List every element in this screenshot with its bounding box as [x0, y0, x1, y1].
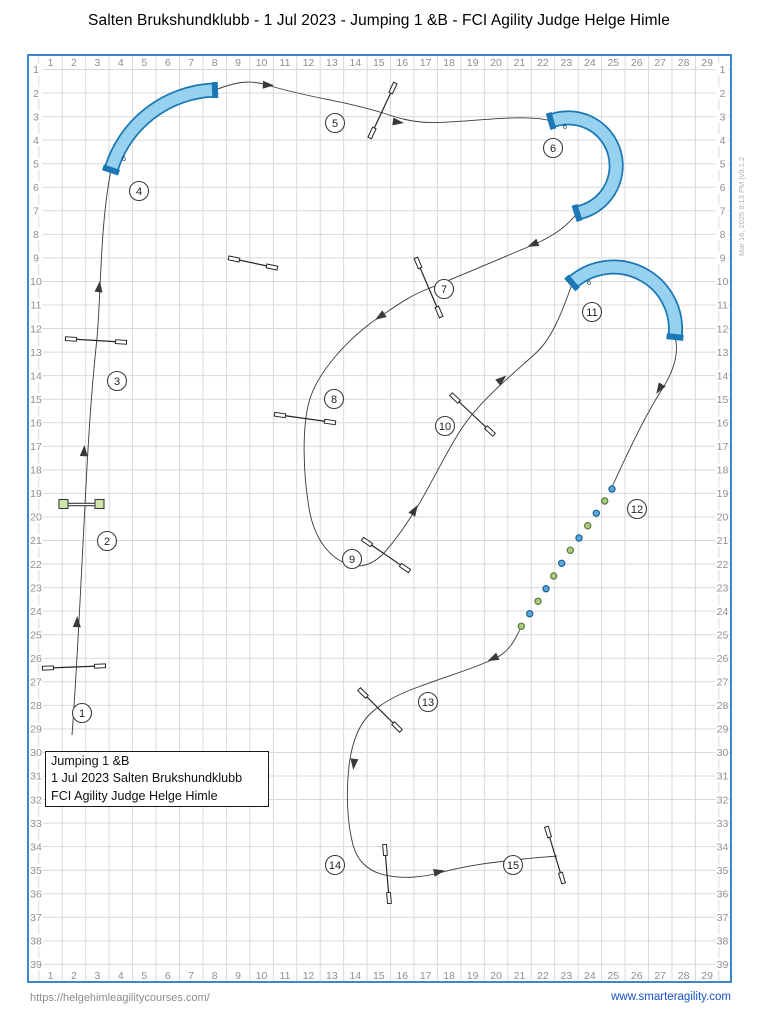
- grid-row-label-right: 3: [720, 111, 726, 123]
- obstacle-number-text: 4: [136, 186, 142, 198]
- grid-row-label-right: 5: [720, 158, 726, 170]
- grid-row-label-left: 3: [33, 111, 39, 123]
- grid-row-label-left: 15: [30, 394, 42, 406]
- jump-obstacle: [383, 844, 392, 903]
- grid-col-label-top: 4: [118, 57, 124, 69]
- grid-row-label-right: 12: [717, 323, 729, 335]
- grid-col-label-bottom: 18: [443, 970, 455, 982]
- grid-row-label-left: 19: [30, 488, 42, 500]
- jump-bar: [385, 850, 389, 898]
- grid-row-label-right: 23: [717, 582, 729, 594]
- grid-col-label-bottom: 12: [303, 970, 315, 982]
- jump-wing: [324, 419, 335, 424]
- grid-row-label-left: 27: [30, 677, 42, 689]
- grid-row-label-right: 16: [717, 417, 729, 429]
- direction-arrow: [526, 239, 539, 251]
- grid-row-label-left: 28: [30, 700, 42, 712]
- grid-row-label-right: 27: [717, 677, 729, 689]
- grid-row-label-left: 13: [30, 347, 42, 359]
- grid-col-label-top: 28: [678, 57, 690, 69]
- obstacle-number: 3: [108, 372, 127, 391]
- grid-row-label-right: 2: [720, 88, 726, 100]
- grid-col-label-top: 11: [280, 57, 291, 69]
- grid-row-label-left: 11: [31, 300, 42, 312]
- obstacle-number: 15: [504, 856, 523, 875]
- grid-row-label-left: 35: [30, 865, 42, 877]
- grid-row-label-left: 38: [30, 936, 42, 948]
- grid-row-label-left: 2: [33, 88, 39, 100]
- grid-col-label-bottom: 4: [118, 970, 124, 982]
- grid-row-label-left: 31: [30, 771, 42, 783]
- grid-col-label-top: 13: [326, 57, 338, 69]
- jump-wing: [274, 412, 285, 417]
- direction-arrow: [408, 503, 421, 517]
- obstacle-number: 12: [628, 500, 647, 519]
- jump-wing: [559, 872, 566, 884]
- direction-arrow: [73, 616, 81, 627]
- tunnel-end-cap: [215, 82, 216, 98]
- grid-row-label-left: 8: [33, 229, 39, 241]
- grid-col-label-bottom: 1: [48, 970, 54, 982]
- obstacle-number-text: 7: [441, 284, 447, 296]
- grid-row-label-left: 4: [33, 135, 39, 147]
- grid-row-label-left: 10: [30, 276, 42, 288]
- tunnel-end-cap: [667, 336, 684, 338]
- direction-arrow: [349, 758, 358, 770]
- grid-row-label-left: 18: [30, 465, 42, 477]
- tunnel-length-label: 6: [587, 278, 591, 287]
- course-path: [304, 213, 577, 566]
- grid-col-label-top: 15: [373, 57, 385, 69]
- grid-col-label-top: 29: [701, 57, 713, 69]
- grid-col-label-bottom: 5: [141, 970, 147, 982]
- grid-row-label-right: 34: [717, 841, 729, 853]
- obstacle-number-text: 12: [631, 504, 643, 516]
- grid-row-label-right: 38: [717, 936, 729, 948]
- grid-col-label-top: 12: [303, 57, 315, 69]
- grid-col-label-top: 2: [71, 57, 77, 69]
- obstacle-number: 9: [343, 550, 362, 569]
- jump-obstacle: [361, 537, 410, 572]
- obstacle-number-text: 2: [104, 536, 110, 548]
- grid-col-label-top: 8: [212, 57, 218, 69]
- grid-col-label-bottom: 16: [396, 970, 408, 982]
- grid-col-label-bottom: 19: [467, 970, 479, 982]
- obstacle-number-text: 8: [331, 394, 337, 406]
- tunnel-obstacle: [103, 82, 215, 173]
- weave-pole: [602, 498, 608, 504]
- obstacle-number-text: 1: [79, 708, 85, 720]
- grid-row-label-left: 17: [30, 441, 42, 453]
- grid-row-label-left: 22: [30, 559, 42, 571]
- grid-col-label-bottom: 20: [490, 970, 502, 982]
- grid-row-label-left: 32: [30, 794, 42, 806]
- weave-pole: [551, 573, 557, 579]
- grid-row-label-right: 39: [717, 959, 729, 971]
- jump-wing: [383, 844, 388, 855]
- grid-col-label-top: 14: [350, 57, 362, 69]
- grid-row-label-left: 39: [30, 959, 42, 971]
- grid-row-label-right: 4: [720, 135, 726, 147]
- grid-col-label-top: 18: [443, 57, 455, 69]
- weave-pole: [535, 598, 541, 604]
- grid-col-label-bottom: 21: [514, 970, 526, 982]
- grid-row-label-left: 7: [33, 206, 39, 218]
- grid-row-label-right: 32: [717, 794, 729, 806]
- grid-col-label-top: 26: [631, 57, 643, 69]
- tunnel-length-label: 6: [122, 154, 126, 163]
- grid-row-label-right: 15: [717, 394, 729, 406]
- obstacle-number-text: 9: [349, 554, 355, 566]
- grid-row-label-right: 24: [717, 606, 729, 618]
- obstacle-number: 5: [326, 114, 345, 133]
- obstacle-number: 7: [435, 280, 454, 299]
- grid-col-label-bottom: 2: [71, 970, 77, 982]
- grid-row-label-right: 8: [720, 229, 726, 241]
- grid-row-label-right: 1: [720, 64, 726, 76]
- grid-col-label-top: 19: [467, 57, 479, 69]
- obstacle-number: 4: [130, 182, 149, 201]
- grid-col-label-bottom: 25: [607, 970, 619, 982]
- grid-row-label-right: 18: [717, 465, 729, 477]
- obstacle-number: 8: [325, 390, 344, 409]
- course-path: [72, 170, 111, 735]
- obstacle-number: 1: [73, 704, 92, 723]
- grid-row-label-right: 25: [717, 629, 729, 641]
- direction-arrow: [263, 81, 275, 90]
- jump-wing: [228, 256, 240, 262]
- grid-col-label-top: 9: [235, 57, 241, 69]
- grid-row-label-right: 31: [717, 771, 729, 783]
- grid-row-label-left: 33: [30, 818, 42, 830]
- grid-row-label-left: 24: [30, 606, 42, 618]
- obstacle-number: 6: [544, 139, 563, 158]
- grid-row-label-right: 20: [717, 512, 729, 524]
- course-info-line: FCI Agility Judge Helge Himle: [51, 788, 263, 805]
- grid-row-label-right: 17: [717, 441, 729, 453]
- direction-arrow: [95, 281, 104, 293]
- grid-col-label-top: 21: [514, 57, 526, 69]
- grid-col-label-bottom: 9: [235, 970, 241, 982]
- grid-col-label-bottom: 29: [701, 970, 713, 982]
- grid-row-label-right: 22: [717, 559, 729, 571]
- obstacle-number: 14: [326, 856, 345, 875]
- obstacle-number-text: 10: [439, 421, 451, 433]
- jump-wing: [65, 337, 76, 341]
- jump-wing: [392, 722, 402, 732]
- jump-obstacle: [65, 337, 126, 344]
- jump-bar: [48, 666, 100, 668]
- jump-wing: [435, 306, 443, 318]
- tunnel-length-label: 6: [563, 122, 567, 131]
- tunnel-body: [111, 90, 215, 170]
- grid-row-label-left: 26: [30, 653, 42, 665]
- jump-wing: [399, 563, 410, 572]
- grid-col-label-top: 16: [396, 57, 408, 69]
- grid-row-label-left: 12: [30, 323, 42, 335]
- weave-pole: [527, 611, 533, 617]
- grid-row-label-left: 5: [33, 158, 39, 170]
- grid-row-label-right: 10: [717, 276, 729, 288]
- grid-col-label-bottom: 26: [631, 970, 643, 982]
- jump-obstacle: [368, 82, 397, 139]
- obstacle-number-text: 14: [329, 860, 341, 872]
- weave-pole: [576, 535, 582, 541]
- grid-row-label-left: 14: [30, 370, 42, 382]
- grid-row-label-left: 29: [30, 724, 42, 736]
- weave-pole: [593, 510, 599, 516]
- obstacle-number-text: 3: [114, 376, 120, 388]
- grid-col-label-top: 7: [188, 57, 194, 69]
- tunnel-obstacle: [549, 113, 616, 221]
- grid-row-label-left: 23: [30, 582, 42, 594]
- grid-row-label-right: 26: [717, 653, 729, 665]
- grid-col-label-bottom: 14: [350, 970, 362, 982]
- grid-col-label-bottom: 17: [420, 970, 432, 982]
- grid-row-label-left: 1: [33, 64, 39, 76]
- grid-col-label-top: 10: [256, 57, 268, 69]
- jump-wing: [545, 826, 552, 838]
- grid-col-label-top: 27: [654, 57, 666, 69]
- grid-col-label-top: 25: [607, 57, 619, 69]
- grid-row-label-left: 9: [33, 253, 39, 265]
- obstacle-number: 13: [419, 693, 438, 712]
- grid-col-label-bottom: 13: [326, 970, 338, 982]
- obstacle-number-text: 13: [422, 697, 434, 709]
- jump-bar: [280, 415, 330, 422]
- grid-row-label-right: 9: [720, 253, 726, 265]
- grid-col-label-top: 22: [537, 57, 549, 69]
- grid-col-label-top: 5: [141, 57, 147, 69]
- grid-row-label-right: 14: [717, 370, 729, 382]
- tunnel-body: [551, 118, 616, 213]
- grid-col-label-top: 6: [165, 57, 171, 69]
- footer-source-url: https://helgehimleagilitycourses.com/: [30, 992, 210, 1004]
- grid-row-label-left: 37: [30, 912, 42, 924]
- obstacle-number-text: 5: [332, 118, 338, 130]
- weave-pole: [585, 523, 591, 529]
- grid-col-label-bottom: 24: [584, 970, 596, 982]
- grid-col-label-top: 3: [94, 57, 100, 69]
- timestamp-version-note: Mar 16, 2025 9:13 PM (v9.1.2: [737, 157, 746, 256]
- footer-smarteragility-link[interactable]: www.smarteragility.com: [611, 991, 731, 1003]
- grid-col-label-bottom: 10: [256, 970, 268, 982]
- grid-row-label-right: 37: [717, 912, 729, 924]
- jump-bar: [71, 339, 121, 342]
- grid-col-label-top: 20: [490, 57, 502, 69]
- grid-row-label-left: 30: [30, 747, 42, 759]
- obstacle-number-text: 6: [550, 143, 556, 155]
- grid-col-label-bottom: 11: [280, 970, 291, 982]
- course-path: [612, 337, 677, 487]
- grid-col-label-bottom: 6: [165, 970, 171, 982]
- obstacle-number-text: 15: [507, 860, 519, 872]
- grid-col-label-bottom: 3: [94, 970, 100, 982]
- course-info-box: Jumping 1 &B 1 Jul 2023 Salten Brukshund…: [45, 751, 269, 807]
- jump-wing-green: [95, 500, 104, 509]
- weave-pole: [567, 547, 573, 553]
- jump-wing: [42, 666, 53, 670]
- jump-wing: [414, 257, 422, 269]
- grid-row-label-right: 7: [720, 206, 726, 218]
- grid-row-label-left: 25: [30, 629, 42, 641]
- direction-arrow: [373, 310, 387, 323]
- grid-col-label-bottom: 8: [212, 970, 218, 982]
- jump-wing: [368, 127, 376, 139]
- green-jump-obstacle: [59, 500, 104, 509]
- jump-wing: [115, 340, 126, 344]
- grid-row-label-left: 20: [30, 512, 42, 524]
- course-info-line: 1 Jul 2023 Salten Brukshundklubb: [51, 770, 263, 787]
- grid-row-label-right: 19: [717, 488, 729, 500]
- jump-obstacle: [358, 688, 402, 732]
- grid-col-label-bottom: 28: [678, 970, 690, 982]
- grid-col-label-top: 17: [420, 57, 432, 69]
- grid-col-label-bottom: 15: [373, 970, 385, 982]
- obstacle-number: 11: [583, 303, 602, 322]
- grid-row-label-right: 28: [717, 700, 729, 712]
- grid-row-label-right: 36: [717, 888, 729, 900]
- jump-wing: [450, 393, 461, 403]
- jump-obstacle: [42, 664, 105, 670]
- grid-col-label-bottom: 22: [537, 970, 549, 982]
- course-info-line: Jumping 1 &B: [51, 753, 263, 770]
- course-map: 1122334455667788991010111112121313141415…: [0, 0, 758, 1024]
- grid-row-label-right: 6: [720, 182, 726, 194]
- weave-pole: [543, 586, 549, 592]
- grid-col-label-top: 24: [584, 57, 596, 69]
- grid-col-label-bottom: 27: [654, 970, 666, 982]
- jump-wing: [387, 892, 392, 903]
- grid-row-label-right: 21: [717, 535, 729, 547]
- jump-wing: [94, 664, 105, 668]
- obstacle-number: 10: [436, 417, 455, 436]
- weave-pole: [559, 560, 565, 566]
- grid-col-label-top: 1: [48, 57, 54, 69]
- grid-col-label-bottom: 7: [188, 970, 194, 982]
- grid-row-label-left: 16: [30, 417, 42, 429]
- jump-wing: [485, 426, 496, 436]
- grid-row-label-left: 34: [30, 841, 42, 853]
- grid-row-label-right: 33: [717, 818, 729, 830]
- weave-pole: [518, 623, 524, 629]
- weave-pole: [609, 486, 615, 492]
- grid-row-label-right: 29: [717, 724, 729, 736]
- jump-wing-green: [59, 500, 68, 509]
- grid-row-label-left: 6: [33, 182, 39, 194]
- grid-col-label-top: 23: [561, 57, 573, 69]
- obstacle-number-text: 11: [586, 307, 597, 319]
- jump-wing: [266, 264, 278, 270]
- grid-row-label-right: 35: [717, 865, 729, 877]
- grid-row-label-left: 21: [30, 535, 42, 547]
- grid-row-label-right: 13: [717, 347, 729, 359]
- grid-row-label-left: 36: [30, 888, 42, 900]
- grid-row-label-right: 30: [717, 747, 729, 759]
- grid-row-label-right: 11: [717, 300, 728, 312]
- grid-col-label-bottom: 23: [561, 970, 573, 982]
- obstacle-number: 2: [98, 532, 117, 551]
